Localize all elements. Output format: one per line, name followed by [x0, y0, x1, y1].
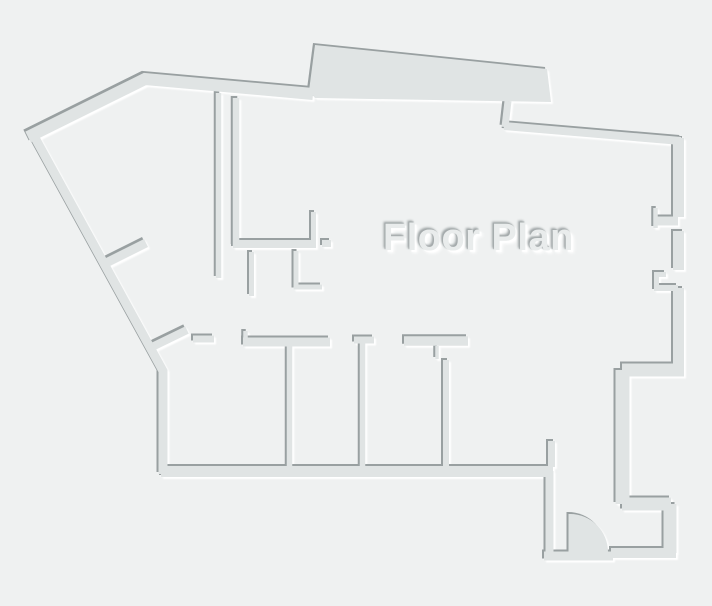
outer-top-left-wall — [28, 79, 313, 137]
walls-group — [28, 45, 684, 557]
outer-top-right-wall — [504, 126, 681, 141]
diagonal-wall-stub-2 — [154, 330, 187, 346]
interior-stub-b — [296, 251, 322, 287]
diagonal-wall-stub-1 — [106, 243, 146, 263]
floor-plan-canvas: Floor Plan — [0, 0, 712, 606]
floor-plan-drawing — [0, 0, 712, 606]
top-bump — [309, 45, 551, 102]
plan-title: Floor Plan — [383, 219, 574, 257]
floor-plan-page: { "canvas": { "width": 712, "height": 60… — [0, 0, 712, 606]
outer-left-diagonal-wall — [34, 136, 163, 474]
right-notch2-bracket — [657, 275, 667, 286]
door-swing — [570, 514, 608, 552]
